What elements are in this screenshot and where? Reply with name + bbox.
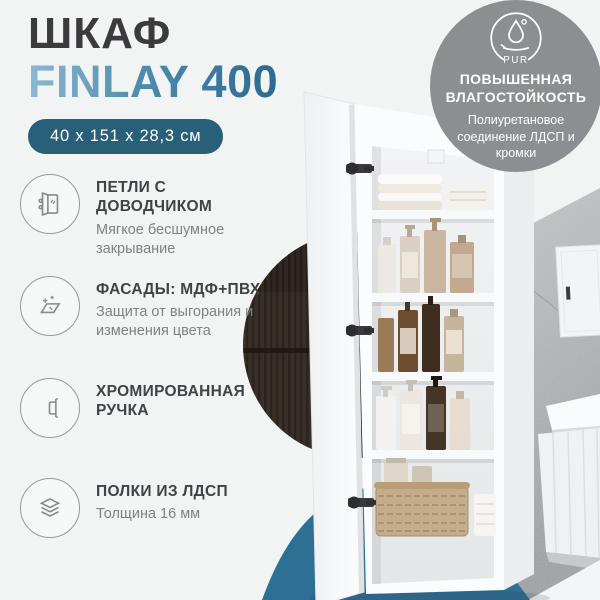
product-card: ШКАФ FINLAY 400 40 x 151 x 28,3 см PUR П… — [0, 0, 600, 600]
product-photo-scene — [0, 0, 600, 600]
door-latch — [428, 150, 444, 163]
wall-cabinet — [556, 245, 600, 337]
cabinet-handle — [566, 287, 571, 300]
product-cabinet — [304, 92, 550, 600]
cabinet-side-panel — [504, 128, 534, 590]
